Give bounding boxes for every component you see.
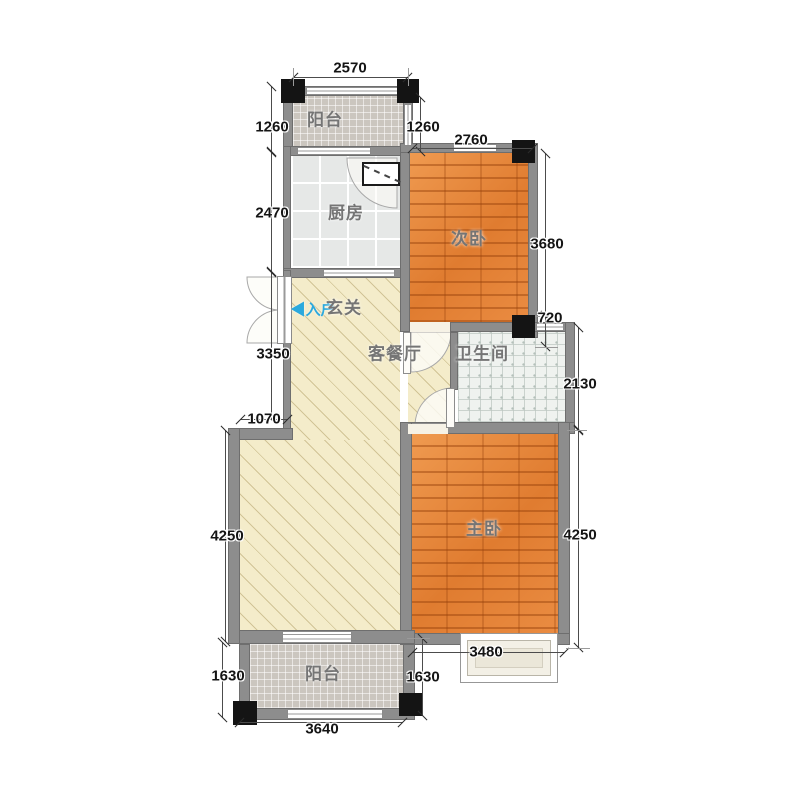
dim-line-top-width <box>293 77 408 78</box>
dim-jog-width: 1070 <box>247 411 280 428</box>
dim-balcony-bottom-left-height: 1630 <box>211 668 244 685</box>
dim-bedroom-second-width: 2760 <box>454 132 487 149</box>
room-label-bedroom-master: 主卧 <box>466 515 502 540</box>
dim-balcony-bottom-right-height: 1630 <box>406 669 439 686</box>
bedroom-second-doorway <box>410 322 450 332</box>
extension-line <box>407 638 430 639</box>
room-label-bathroom: 卫生间 <box>455 340 509 365</box>
wall-bedroom-second-left <box>400 146 410 332</box>
extension-line <box>535 347 558 348</box>
kitchen-slider <box>323 269 395 277</box>
kitchen-vent-box <box>362 162 400 186</box>
room-label-balcony-top: 阳台 <box>307 106 343 131</box>
bathroom-door-leaf <box>446 388 455 428</box>
dim-pier-height: 720 <box>537 310 562 327</box>
dim-entry-wall-height: 3350 <box>256 346 289 363</box>
entry-arrow-icon: ◀ <box>290 302 305 319</box>
living-balcony-slider <box>282 631 352 643</box>
dim-balcony-top-left-height: 1260 <box>255 119 288 136</box>
kitchen-window <box>297 147 371 155</box>
dim-top-width: 2570 <box>333 60 366 77</box>
extension-line <box>566 648 590 649</box>
bedroom-master-doorway <box>408 424 448 434</box>
dim-line-bedroom-second-height <box>545 153 546 316</box>
wall-master-left <box>400 422 412 645</box>
extension-line <box>408 68 409 86</box>
dim-kitchen-height: 2470 <box>255 205 288 222</box>
kitchen-vent-dash <box>363 165 400 183</box>
extension-line <box>293 68 294 86</box>
room-label-bedroom-second: 次卧 <box>451 225 487 250</box>
dim-master-height: 4250 <box>563 527 596 544</box>
room-label-living-dining: 客餐厅 <box>368 340 422 365</box>
dim-bay-window-width: 3480 <box>469 644 502 661</box>
room-label-entry: 玄关 <box>326 294 362 319</box>
entry-door-arc-lower <box>247 310 280 343</box>
room-label-kitchen: 厨房 <box>328 199 364 224</box>
balcony-bottom-window <box>287 709 383 719</box>
living-floor-lower <box>240 440 400 632</box>
dim-balcony-bottom-width: 3640 <box>305 721 338 738</box>
column <box>512 315 535 338</box>
column <box>512 140 535 163</box>
dim-bedroom-second-height: 3680 <box>530 236 563 253</box>
dim-living-height: 4250 <box>210 528 243 545</box>
entry-door-arc-upper <box>247 277 280 310</box>
balcony-top-window <box>306 87 402 95</box>
floor-plan: 2570 1260 1260 2760 2470 3680 720 2130 3… <box>0 0 800 800</box>
dim-bathroom-height: 2130 <box>563 376 596 393</box>
extension-line <box>567 430 587 431</box>
dim-balcony-top-right-height: 1260 <box>406 119 439 136</box>
room-label-balcony-bottom: 阳台 <box>305 660 341 685</box>
